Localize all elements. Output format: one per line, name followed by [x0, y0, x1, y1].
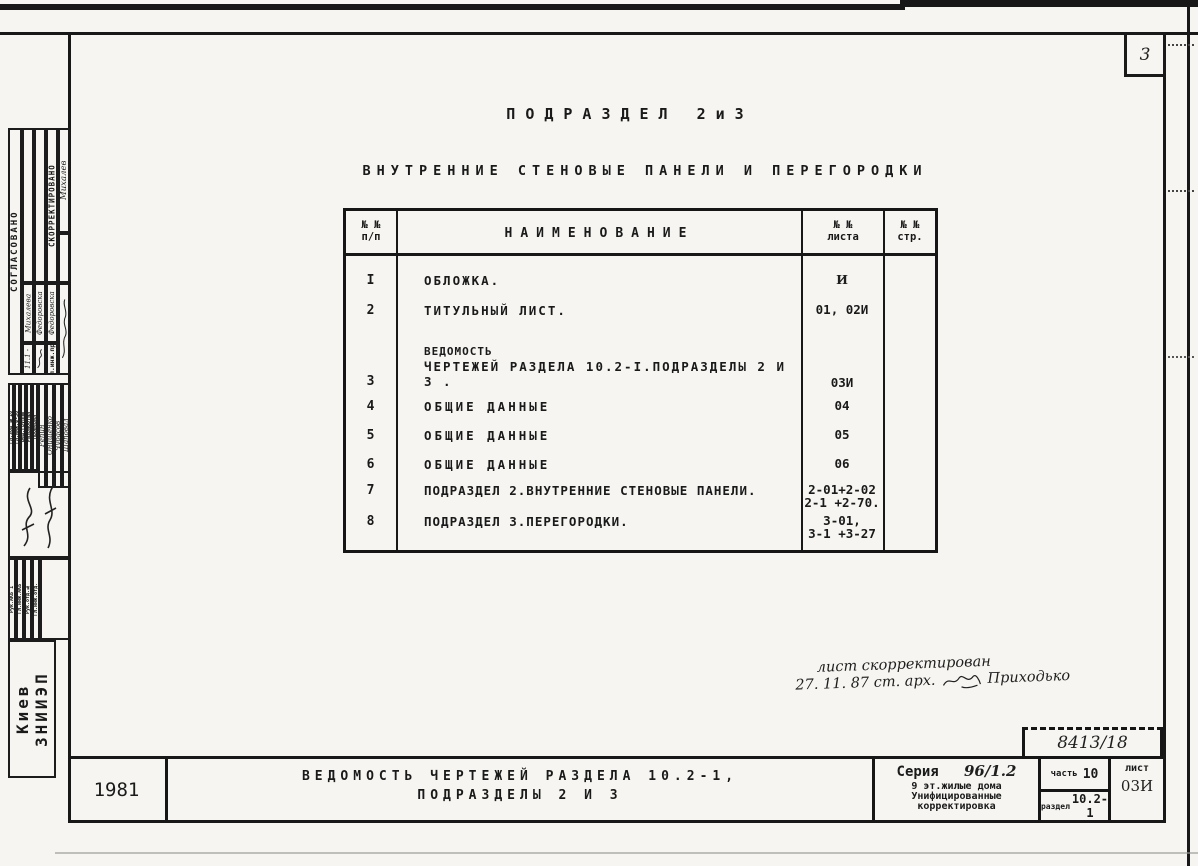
row-num: 2	[346, 303, 396, 318]
signer-name: Михалева	[24, 293, 33, 332]
signature-squiggle	[60, 289, 68, 369]
row-page	[883, 303, 941, 318]
row-name-pre: ВЕДОМОСТЬ	[424, 344, 801, 359]
scan-bottom-faint-line	[55, 852, 1198, 854]
row-name: ТИТУЛЬНЫЙ ЛИСТ.	[396, 303, 801, 318]
sidebar-dept-cell: Рук.АКБ 1	[8, 558, 16, 640]
dept-label: Гл.инж.отд.	[33, 582, 39, 615]
signer-name: Чубасов	[54, 420, 62, 450]
row-num: 6	[346, 457, 396, 472]
part-cell: часть 10	[1041, 759, 1108, 792]
row-sheet-line2: 2-1 +2-70.	[804, 495, 879, 510]
sidebar-signature-cell	[58, 283, 70, 375]
row-sheet-line2: 3-1 +3-27	[808, 526, 876, 541]
part-section-box: часть 10 раздел 10.2-1	[1038, 759, 1108, 820]
series-desc3: корректировка	[875, 802, 1038, 812]
row-sheet: 03И	[801, 376, 883, 389]
scan-top-bar-right	[900, 0, 1198, 7]
right-tick-mark	[1164, 356, 1194, 358]
row-sheet: 04	[801, 399, 883, 414]
corrected-label: СКОРРЕКТИРОВАНО	[48, 164, 57, 247]
sidebar-signature-cell	[34, 343, 46, 375]
row-num: 8	[346, 514, 396, 540]
row-name-main: ЧЕРТЕЖЕЙ РАЗДЕЛА 10.2-I.ПОДРАЗДЕЛЫ 2 И 3…	[424, 359, 786, 389]
sidebar-org-cell: Киев ЗНИИЭП	[8, 640, 56, 778]
year-box: 1981	[68, 759, 168, 820]
sidebar-dept-cell: Гл.инж.АКБ	[16, 558, 24, 640]
part-label: часть	[1051, 769, 1078, 779]
row-page	[883, 273, 941, 288]
row-sheet: 3-01, 3-1 +3-27	[801, 514, 883, 540]
series-value: 96/1.2	[964, 762, 1016, 780]
row-page	[883, 428, 941, 443]
section-label: раздел	[1041, 802, 1070, 811]
doc-title-line2: ПОДРАЗДЕЛЫ 2 И 3	[168, 788, 872, 803]
scanned-sheet: 3 СОГЛАСОВАНО СКОРРЕКТИРОВАНО Михалев Ми…	[0, 0, 1198, 866]
row-sheet: 06	[801, 457, 883, 472]
table-header-line	[346, 253, 935, 256]
chief-engineer-name: Михалев	[59, 161, 69, 200]
scan-top-bar	[0, 4, 905, 10]
sheet-value: 03И	[1111, 777, 1163, 795]
drawings-index-table: № № п/п НАИМЕНОВАНИЕ № № листа № № стр. …	[343, 208, 938, 553]
sidebar-chief-name-cell: Михалев	[58, 128, 70, 233]
sidebar-name1-cell: Михалева	[22, 283, 34, 343]
date-note: 11.1 -	[24, 349, 32, 369]
sidebar-empty-cell	[22, 128, 34, 283]
table-row: 7 ПОДРАЗДЕЛ 2.ВНУТРЕННИЕ СТЕНОВЫЕ ПАНЕЛИ…	[346, 483, 941, 509]
sidebar-dept-cell: Рук.отд.№	[24, 558, 32, 640]
page-subtitle: ВНУТРЕННИЕ СТЕНОВЫЕ ПАНЕЛИ И ПЕРЕГОРОДКИ	[130, 163, 1160, 179]
row-num: 4	[346, 399, 396, 414]
section-value: 10.2-1	[1072, 792, 1108, 820]
series-box: Серия 96/1.2 9 эт.жилые дома Унифицирова…	[872, 759, 1038, 820]
sidebar-approved-cell: СОГЛАСОВАНО	[8, 128, 22, 375]
col-header-sheet: № № листа	[803, 219, 883, 243]
series-line: Серия 96/1.2	[875, 762, 1038, 780]
sidebar-name2-cell: Федоровска	[34, 283, 46, 343]
signature-squiggle	[20, 480, 36, 550]
col-header-num-line2: п/п	[362, 231, 381, 243]
sidebar-empty-cell	[34, 128, 46, 283]
row-page	[883, 514, 941, 540]
col-header-page-line1: № №	[901, 219, 920, 231]
doc-number: 8413/18	[1057, 733, 1128, 753]
handwritten-note: лист скорректирован 27. 11. 87 ст. арх. …	[795, 649, 1116, 694]
col-header-num: № № п/п	[346, 219, 396, 243]
scan-right-edge-line	[1187, 0, 1190, 866]
frame-top-line	[0, 32, 1198, 35]
signature-squiggle	[42, 480, 58, 550]
sidebar-empty-cell	[58, 233, 70, 283]
col-header-num-line1: № №	[362, 219, 381, 231]
row-page	[883, 483, 941, 509]
note-signature-name: Приходько	[987, 668, 1070, 687]
sidebar-dept-cell: Гл.инж.отд.	[32, 558, 40, 640]
col-header-page: № № стр.	[885, 219, 935, 243]
col-header-page-line2: стр.	[897, 231, 922, 243]
row-name: ПОДРАЗДЕЛ 3.ПЕРЕГОРОДКИ.	[396, 514, 801, 540]
doc-number-box: 8413/18	[1022, 727, 1163, 759]
dept-label: Гл.инж.АКБ	[17, 584, 23, 614]
signer-name: Шаповал	[62, 419, 70, 453]
row-num: 7	[346, 483, 396, 509]
sidebar-name1-note-cell: 11.1 -	[22, 343, 34, 375]
dept-label: Рук.АКБ 1	[9, 585, 15, 612]
sheet-label: лист	[1111, 763, 1163, 774]
row-page	[883, 399, 941, 414]
org-name: Киев ЗНИИЭП	[13, 642, 51, 776]
row-name: ОБЛОЖКА.	[396, 273, 801, 288]
sheet-box: лист 03И	[1108, 759, 1163, 820]
frame-bottom-line	[68, 820, 1166, 823]
page-number: 3	[1140, 45, 1151, 65]
page-title: ПОДРАЗДЕЛ 2и3	[300, 105, 960, 123]
part-value: 10	[1083, 767, 1099, 782]
series-label: Серия	[897, 764, 939, 780]
col-header-sheet-line2: листа	[827, 231, 859, 243]
sidebar-corrected-cell: СКОРРЕКТИРОВАНО	[46, 128, 58, 283]
row-name: ОБЩИЕ ДАННЫЕ	[396, 457, 801, 472]
row-num: 3	[346, 374, 396, 389]
table-row: I ОБЛОЖКА. И	[346, 273, 941, 288]
right-tick-mark	[1164, 190, 1194, 192]
table-row: 5 ОБЩИЕ ДАННЫЕ 05	[346, 428, 941, 443]
sidebar-chief-label-cell: Гл.инж.пр.	[46, 343, 58, 375]
chief-engineer-label: Гл.инж.пр.	[48, 343, 56, 375]
table-row: 8 ПОДРАЗДЕЛ 3.ПЕРЕГОРОДКИ. 3-01, 3-1 +3-…	[346, 514, 941, 540]
row-name: ОБЩИЕ ДАННЫЕ	[396, 399, 801, 414]
signer-name: Онищенко	[46, 416, 54, 455]
sidebar-signatures-block	[8, 471, 70, 558]
col-header-sheet-line1: № №	[834, 219, 853, 231]
dept-label: Рук.отд.№	[25, 584, 31, 614]
frame-right-line	[1163, 32, 1166, 823]
row-page	[883, 457, 941, 472]
signer-name: Федоровска	[48, 291, 56, 335]
table-row: 6 ОБЩИЕ ДАННЫЕ 06	[346, 457, 941, 472]
right-tick-mark	[1164, 44, 1194, 46]
row-num: I	[346, 273, 396, 288]
table-row: 2 ТИТУЛЬНЫЙ ЛИСТ. 01, 02И	[346, 303, 941, 318]
row-sheet: 01, 02И	[801, 303, 883, 318]
section-cell: раздел 10.2-1	[1041, 792, 1108, 820]
row-name: ПОДРАЗДЕЛ 2.ВНУТРЕННИЕ СТЕНОВЫЕ ПАНЕЛИ.	[396, 483, 801, 509]
row-sheet: И	[801, 273, 883, 288]
sidebar-name3-cell: Федоровска	[46, 283, 58, 343]
table-row: 4 ОБЩИЕ ДАННЫЕ 04	[346, 399, 941, 414]
row-num: 5	[346, 428, 396, 443]
doc-title-box: ВЕДОМОСТЬ ЧЕРТЕЖЕЙ РАЗДЕЛА 10.2-1, ПОДРА…	[168, 759, 872, 820]
signer-name: Федоровска	[36, 291, 44, 335]
row-name: ОБЩИЕ ДАННЫЕ	[396, 428, 801, 443]
row-name: ВЕДОМОСТЬ ЧЕРТЕЖЕЙ РАЗДЕЛА 10.2-I.ПОДРАЗ…	[396, 344, 801, 389]
col-header-name: НАИМЕНОВАНИЕ	[398, 226, 801, 241]
signer-name: Репин	[38, 424, 46, 446]
page-number-box: 3	[1124, 32, 1166, 77]
row-sheet: 2-01+2-02 2-1 +2-70.	[801, 483, 883, 509]
approved-label: СОГЛАСОВАНО	[10, 211, 20, 293]
signature-squiggle	[36, 346, 44, 372]
year: 1981	[94, 779, 140, 801]
signature-squiggle	[941, 670, 982, 689]
row-sheet: 05	[801, 428, 883, 443]
sidebar-empty-cell	[40, 558, 70, 640]
table-row: 3 ВЕДОМОСТЬ ЧЕРТЕЖЕЙ РАЗДЕЛА 10.2-I.ПОДР…	[346, 344, 941, 389]
doc-title-line1: ВЕДОМОСТЬ ЧЕРТЕЖЕЙ РАЗДЕЛА 10.2-1,	[168, 769, 872, 784]
